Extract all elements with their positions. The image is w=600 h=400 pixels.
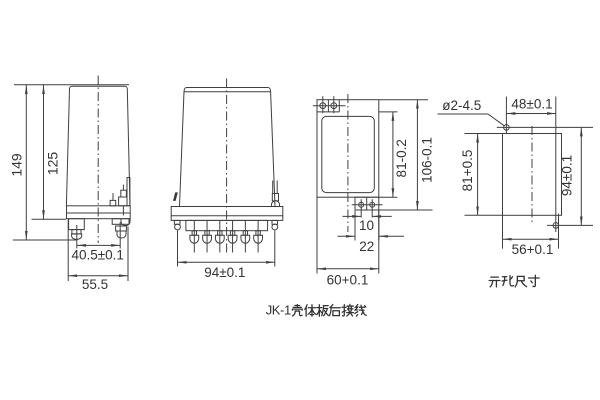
svg-text:81-0.2: 81-0.2 [394, 139, 409, 177]
svg-text:48±0.1: 48±0.1 [511, 97, 552, 112]
svg-text:125: 125 [45, 152, 61, 176]
svg-text:55.5: 55.5 [82, 277, 108, 292]
svg-text:10: 10 [359, 218, 374, 233]
svg-text:81+0.5: 81+0.5 [460, 150, 475, 192]
svg-text:22: 22 [359, 239, 374, 254]
svg-text:ø2-4.5: ø2-4.5 [442, 98, 481, 113]
svg-text:60+0.1: 60+0.1 [327, 273, 369, 288]
svg-text:94±0.1: 94±0.1 [204, 265, 245, 280]
svg-text:94±0.1: 94±0.1 [560, 155, 575, 196]
svg-text:106-0.1: 106-0.1 [420, 137, 435, 183]
svg-text:56+0.1: 56+0.1 [512, 242, 554, 257]
svg-text:40.5±0.1: 40.5±0.1 [71, 247, 123, 262]
svg-text:149: 149 [9, 153, 25, 177]
svg-text:JK-1: JK-1 [266, 303, 291, 318]
